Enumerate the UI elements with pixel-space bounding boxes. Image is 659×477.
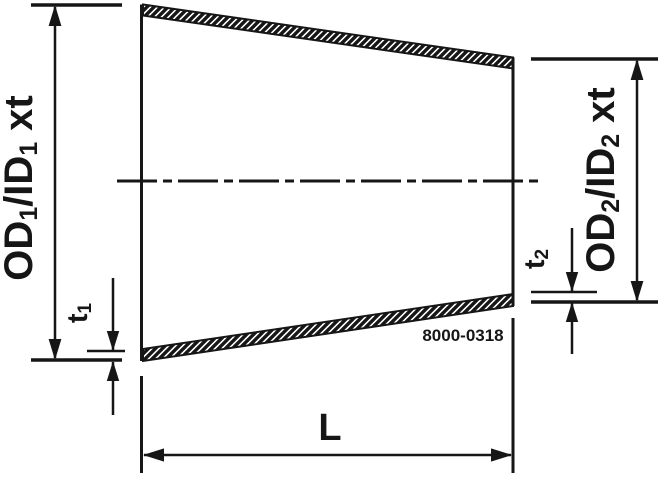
- od2-arrowhead-up-icon: [631, 59, 644, 80]
- od1-arrowhead-up-icon: [49, 5, 62, 26]
- reducer-top-wall: [143, 5, 513, 69]
- od2-label: OD2/ID2xt: [579, 87, 625, 273]
- drawing-number: 8000-0318: [422, 326, 503, 345]
- technical-drawing-canvas: OD1/ID1xt t1 L OD2/ID2xt t2 8000-0318: [0, 0, 659, 477]
- od1-arrowhead-down-icon: [49, 339, 62, 360]
- length-label: L: [318, 407, 341, 449]
- t2-label: t2: [519, 249, 553, 269]
- od1-label: OD1/ID1xt: [0, 95, 43, 281]
- t1-label: t1: [62, 302, 96, 323]
- reducer-diagram: OD1/ID1xt t1 L OD2/ID2xt t2 8000-0318: [0, 0, 659, 477]
- length-arrowhead-left-icon: [143, 448, 164, 461]
- length-arrowhead-right-icon: [491, 448, 512, 461]
- t1-arrowhead-down-icon: [107, 331, 119, 351]
- t2-arrowhead-down-icon: [566, 272, 578, 292]
- od2-arrowhead-down-icon: [631, 281, 644, 302]
